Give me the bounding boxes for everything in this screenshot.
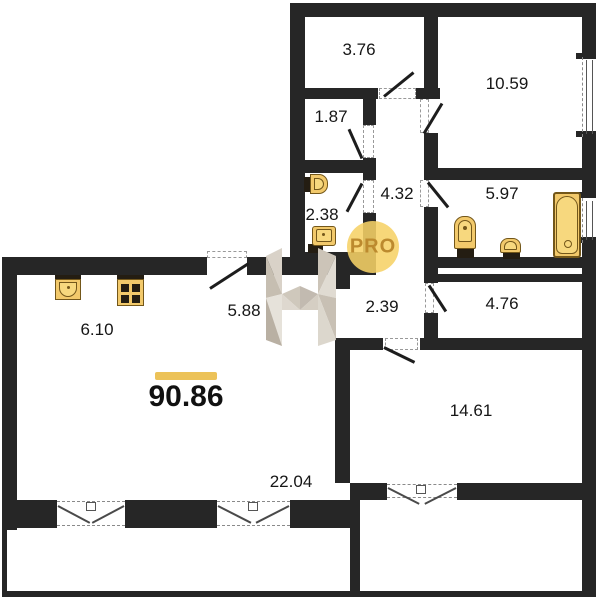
door-wc-2-38 — [363, 180, 374, 213]
watermark-logo-icon — [266, 248, 346, 348]
room-area-label-14-61: 14.61 — [450, 401, 493, 421]
stove-burner-icon — [132, 295, 140, 303]
balcony-edge-left — [2, 528, 7, 597]
wall-left-lower — [2, 257, 17, 530]
stove-burner-icon — [121, 284, 129, 292]
window-right-upper — [582, 57, 583, 137]
window-living-1 — [57, 525, 125, 526]
room-area-label-1-87: 1.87 — [314, 107, 347, 127]
door-leaf — [348, 129, 364, 159]
room-area-label-4-76: 4.76 — [485, 294, 518, 314]
window-handle — [86, 502, 96, 511]
door-leaf — [427, 182, 449, 209]
wall-segment — [438, 274, 582, 282]
wash-basin-icon — [322, 233, 325, 236]
room-area-label-6-10: 6.10 — [80, 320, 113, 340]
wall-segment — [424, 207, 438, 283]
window-right-lower — [582, 198, 583, 243]
room-area-label-10-59: 10.59 — [486, 74, 529, 94]
wall-bottom — [125, 500, 217, 528]
window-bedroom — [387, 497, 457, 498]
wall-right — [582, 3, 596, 57]
wall-entry-top — [2, 257, 207, 275]
stove-burner-icon — [121, 295, 129, 303]
room-area-label-2-39: 2.39 — [365, 297, 398, 317]
window-handle — [416, 485, 426, 494]
wall-segment — [335, 350, 350, 483]
wall-bottom — [290, 500, 360, 528]
stove-burner-icon — [132, 284, 140, 292]
door-leaf — [346, 183, 364, 213]
window-bedroom — [424, 487, 456, 505]
window-living-2 — [218, 505, 252, 524]
wash-basin-icon — [457, 248, 474, 258]
wall-left-upper — [290, 3, 305, 275]
window-living-2 — [217, 525, 290, 526]
room-area-label-2-38: 2.38 — [305, 205, 338, 225]
wall-top — [290, 3, 596, 17]
window-living-1 — [92, 505, 125, 524]
wall-bottom — [350, 483, 387, 500]
floor-plan: PRO 3.76 10.59 1.87 4.32 5.97 2.38 2.39 … — [0, 0, 603, 600]
room-area-label-4-32: 4.32 — [380, 184, 413, 204]
room-area-label-5-97: 5.97 — [485, 184, 518, 204]
total-area-accent-bar — [155, 372, 217, 380]
window-right-upper — [592, 60, 593, 134]
bathtub-drain-icon — [564, 240, 572, 248]
wall-segment — [290, 160, 376, 173]
window-right-lower — [586, 201, 587, 240]
room-area-label-3-76: 3.76 — [342, 40, 375, 60]
entrance-door-leaf — [209, 262, 249, 290]
kitchen-sink-icon — [67, 286, 70, 289]
window-handle — [248, 502, 258, 511]
wall-bottom — [457, 483, 582, 500]
toilet-icon — [504, 241, 517, 250]
window-right-upper — [586, 60, 587, 134]
total-area-label: 90.86 — [148, 380, 223, 414]
wall-bottom — [2, 500, 57, 528]
wash-basin-icon — [458, 220, 472, 242]
wall-right — [582, 243, 596, 597]
wall-segment — [363, 99, 376, 125]
wall-segment — [424, 168, 582, 180]
wash-basin-icon — [463, 226, 467, 230]
window-stub — [576, 53, 596, 59]
balcony-edge-bottom — [2, 591, 596, 597]
window-bedroom — [388, 487, 420, 505]
room-area-label-5-88: 5.88 — [227, 301, 260, 321]
wall-segment — [424, 17, 438, 99]
window-living-2 — [256, 505, 290, 524]
watermark-brand-label: PRO — [350, 236, 396, 259]
entrance-door — [207, 251, 247, 258]
room-area-label-22-04: 22.04 — [270, 472, 313, 492]
wall-right — [582, 137, 596, 198]
wall-segment — [420, 338, 582, 350]
window-right-lower — [592, 201, 593, 240]
wall-segment — [305, 88, 378, 99]
door-room-1-87 — [363, 125, 374, 158]
